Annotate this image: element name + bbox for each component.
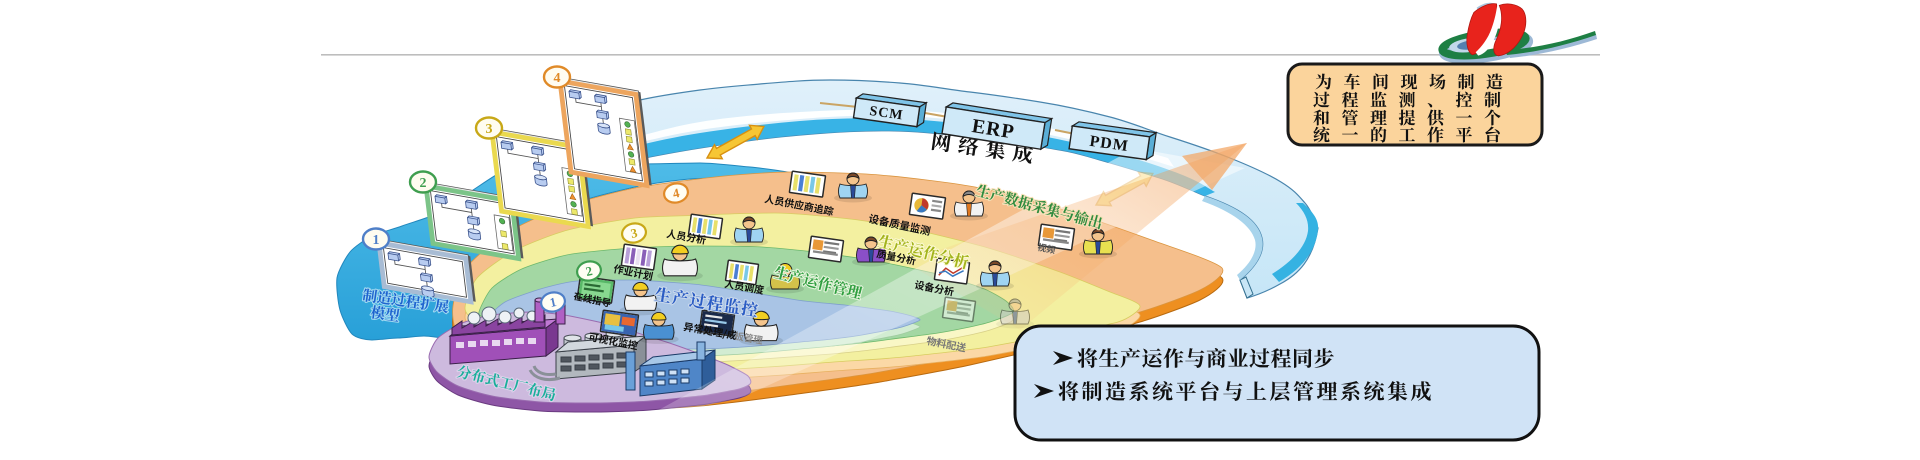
svg-text:4: 4 xyxy=(554,71,561,86)
svg-text:3: 3 xyxy=(486,122,493,137)
svg-text:1: 1 xyxy=(373,233,380,248)
svg-text:2: 2 xyxy=(420,176,427,191)
